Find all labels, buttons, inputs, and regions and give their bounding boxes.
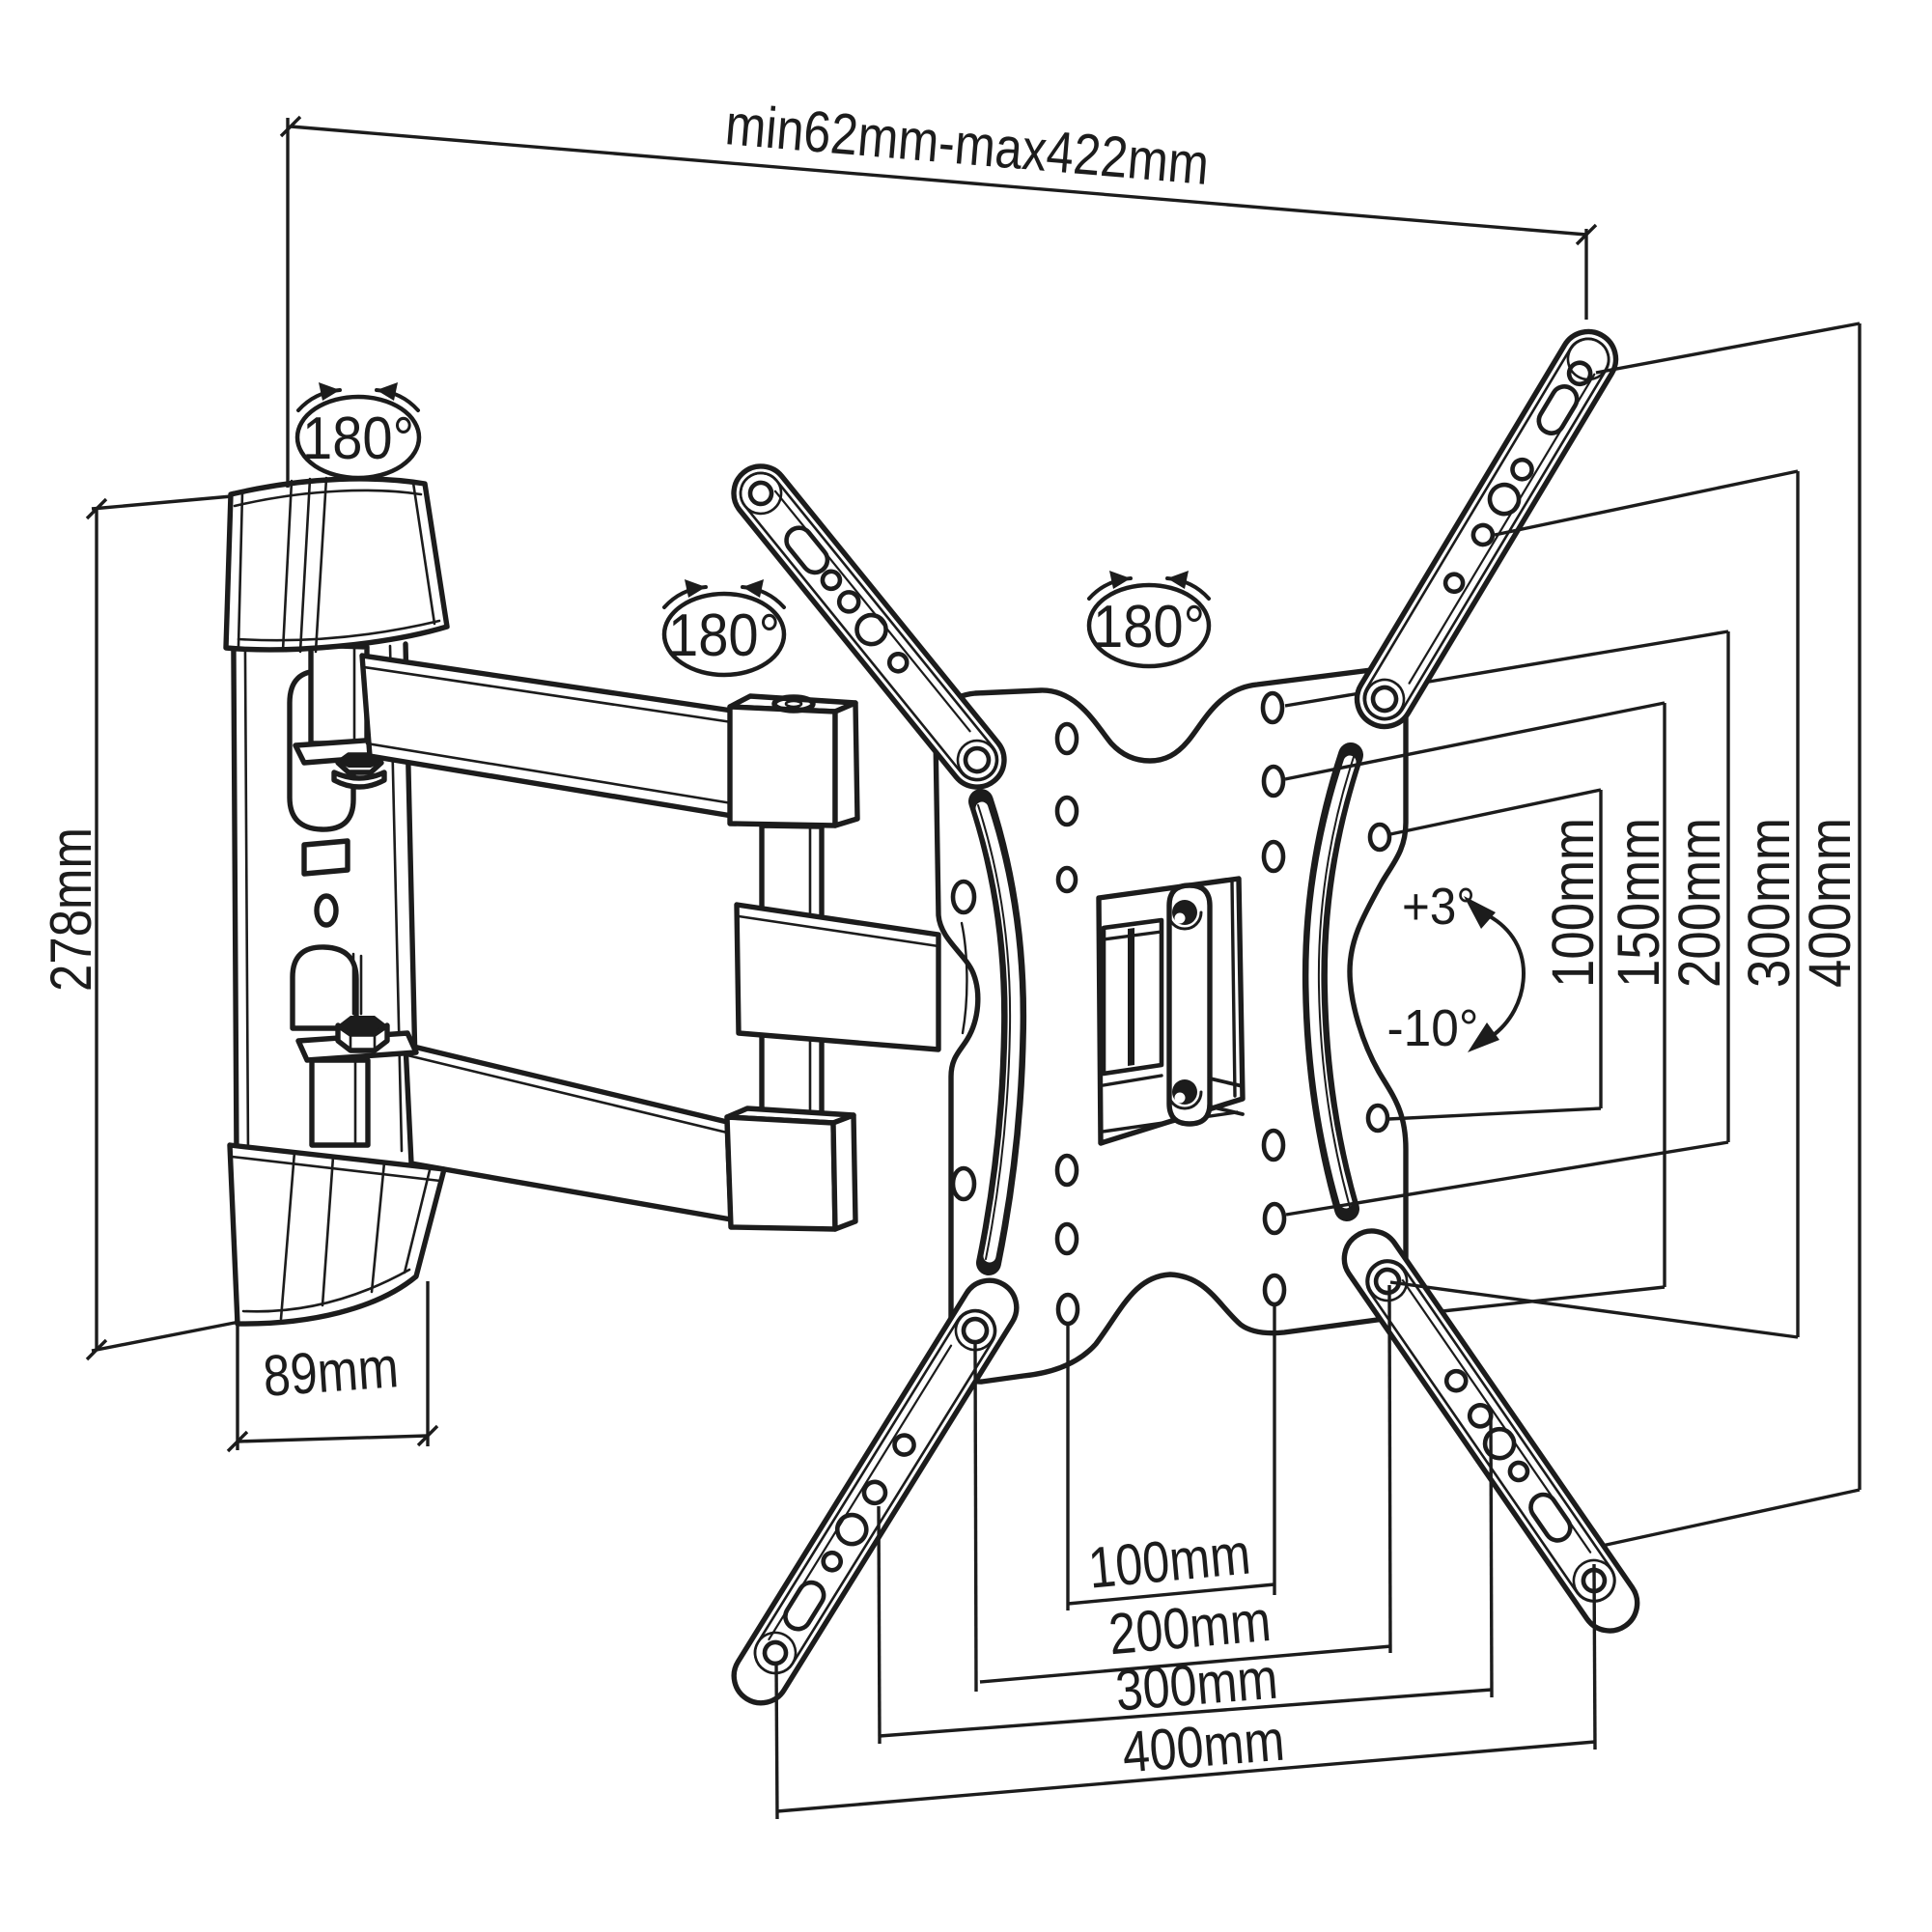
svg-text:200mm: 200mm <box>1666 818 1732 988</box>
svg-text:100mm: 100mm <box>1540 818 1606 988</box>
svg-text:180°: 180° <box>1093 594 1205 660</box>
svg-text:+3°: +3° <box>1402 878 1475 936</box>
svg-text:300mm: 300mm <box>1736 818 1802 988</box>
svg-text:400mm: 400mm <box>1120 1708 1287 1785</box>
svg-text:180°: 180° <box>302 406 414 472</box>
svg-text:150mm: 150mm <box>1606 818 1671 988</box>
svg-text:180°: 180° <box>668 602 780 669</box>
svg-text:89mm: 89mm <box>261 1334 400 1409</box>
svg-text:400mm: 400mm <box>1797 818 1862 988</box>
svg-text:-10°: -10° <box>1387 999 1479 1057</box>
svg-text:278mm: 278mm <box>39 827 103 992</box>
